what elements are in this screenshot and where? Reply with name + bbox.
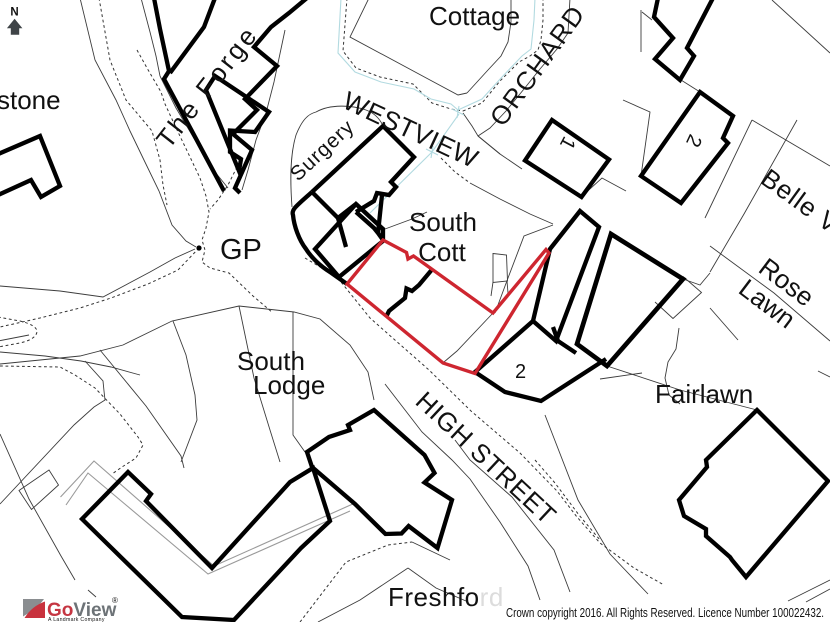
svg-text:®: ® <box>112 596 118 605</box>
svg-text:N: N <box>10 7 18 19</box>
svg-text:Fairlawn: Fairlawn <box>655 379 753 409</box>
svg-text:GP: GP <box>220 234 262 266</box>
svg-text:Cottage: Cottage <box>429 1 520 31</box>
svg-text:Lodge: Lodge <box>253 370 325 400</box>
svg-text:Freshford: Freshford <box>388 582 504 612</box>
svg-text:South: South <box>409 207 477 237</box>
svg-text:Crown copyright 2016. All Righ: Crown copyright 2016. All Rights Reserve… <box>506 606 824 620</box>
svg-text:A Landmark Company: A Landmark Company <box>48 617 105 622</box>
svg-text:stone: stone <box>0 85 61 115</box>
svg-text:2: 2 <box>515 361 526 383</box>
svg-text:Cott: Cott <box>418 237 466 267</box>
